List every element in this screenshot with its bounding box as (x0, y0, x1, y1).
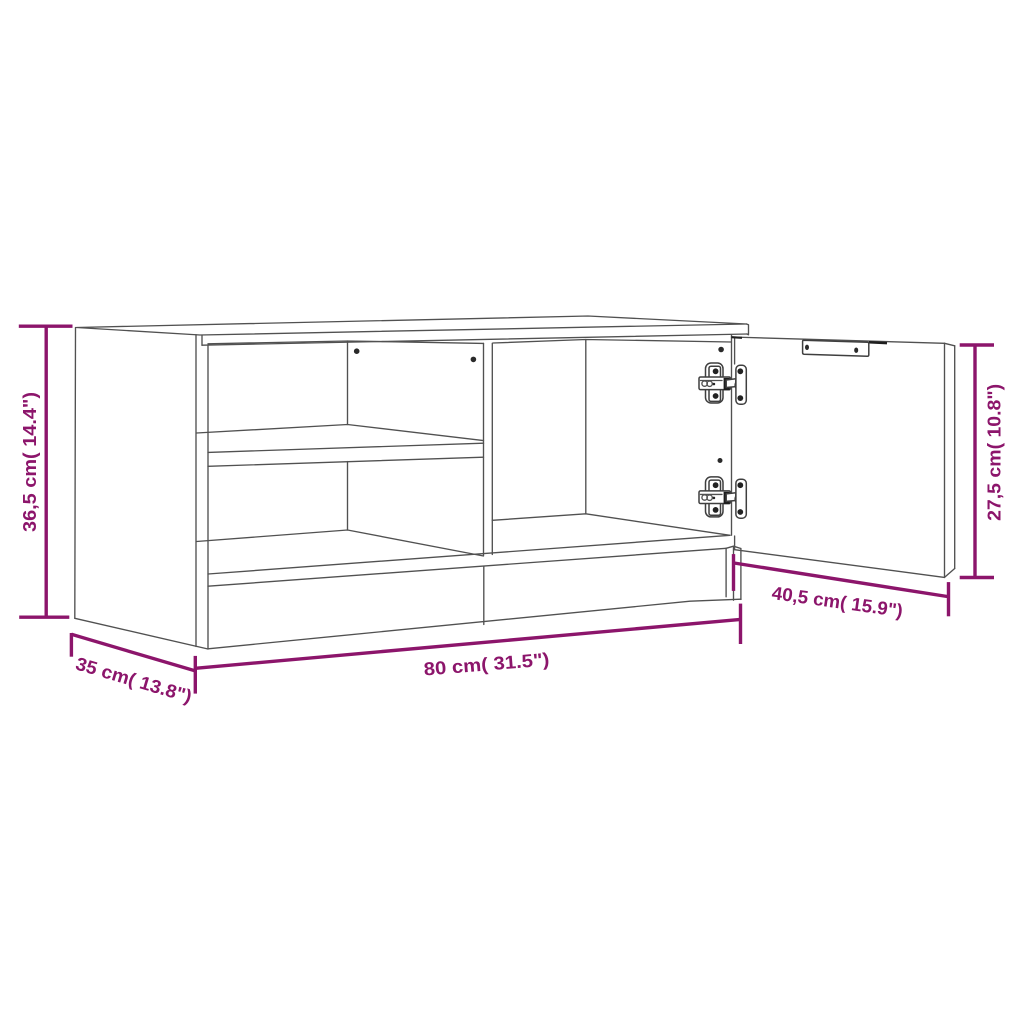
svg-text:27,5 cm( 10.8"): 27,5 cm( 10.8") (984, 384, 1005, 521)
svg-text:36,5 cm( 14.4"): 36,5 cm( 14.4") (19, 392, 40, 532)
